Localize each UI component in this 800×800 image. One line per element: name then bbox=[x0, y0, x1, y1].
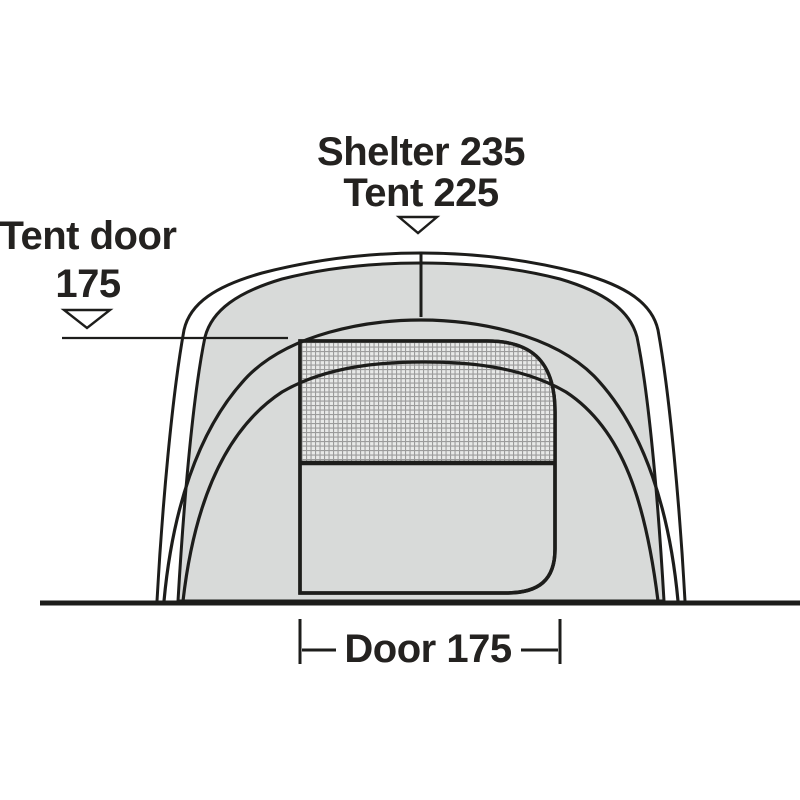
tent-dimension-diagram: Shelter 235 Tent 225 Tent door 175 Door … bbox=[0, 0, 800, 800]
down-arrow-icon bbox=[399, 217, 437, 233]
shelter-width-label: Shelter 235 bbox=[317, 132, 525, 173]
down-arrow-icon bbox=[64, 310, 110, 328]
top-dimension-label: Shelter 235 Tent 225 bbox=[317, 132, 525, 214]
tent-width-label: Tent 225 bbox=[317, 173, 525, 214]
mesh-window bbox=[300, 341, 555, 463]
door-width-label: Door 175 bbox=[344, 629, 511, 669]
left-dimension-label: Tent door 175 bbox=[0, 212, 176, 308]
tent-door-value: 175 bbox=[0, 260, 176, 308]
tent-door-label: Tent door bbox=[0, 212, 176, 260]
tent-drawing bbox=[0, 0, 800, 800]
